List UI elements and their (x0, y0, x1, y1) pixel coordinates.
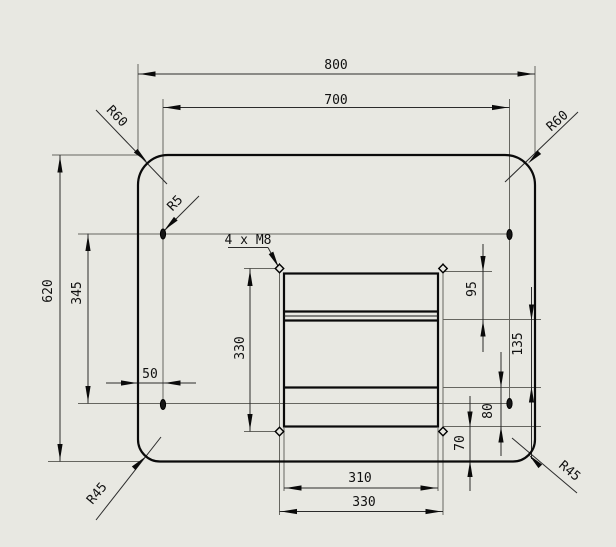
arrow-310-left (286, 485, 302, 490)
arrow-135-bottom (529, 387, 534, 403)
arrow-r60-top-left (134, 149, 149, 164)
leader-r60-top-left (96, 110, 167, 184)
arrow-800-right (518, 71, 534, 76)
arrow-620-top (57, 157, 62, 173)
arrow-330b-left (281, 509, 297, 514)
arrow-800-left (140, 71, 156, 76)
dim-95-label[interactable]: 95 (465, 281, 480, 297)
arrow-70-bottom (467, 461, 472, 477)
m8-marker-bottom-right (439, 427, 447, 435)
arrow-r60-top-right (526, 150, 541, 165)
arrow-310-right (421, 485, 437, 490)
dim-620-label[interactable]: 620 (41, 279, 56, 302)
dim-700-label[interactable]: 700 (324, 93, 347, 108)
arrow-50-right (165, 380, 181, 385)
arrow-700-left (165, 105, 181, 110)
cad-drawing-canvas: 800 700 620 345 330 50 95 135 80 70 310 … (0, 0, 616, 547)
arrow-330b-right (426, 509, 442, 514)
arrow-80-top (498, 372, 503, 388)
arrow-620-bottom (57, 444, 62, 460)
arrow-r45-bottom-left (132, 455, 147, 470)
m8-hole-markers (275, 264, 447, 435)
hole-top-right (507, 230, 512, 240)
arrow-135-top (529, 305, 534, 321)
radius-r60-top-left-label[interactable]: R60 (103, 103, 130, 130)
arrow-70-top (467, 412, 472, 428)
arrow-95-top (480, 256, 485, 272)
hole-bottom-left (160, 400, 165, 410)
dim-800-label[interactable]: 800 (324, 58, 347, 73)
leader-lines (96, 110, 578, 520)
arrow-50-left (121, 380, 137, 385)
dim-330-vertical-label[interactable]: 330 (233, 336, 248, 359)
cad-drawing-svg: 800 700 620 345 330 50 95 135 80 70 310 … (0, 0, 616, 547)
hole-bottom-right (507, 399, 512, 409)
dim-50-label[interactable]: 50 (142, 367, 158, 382)
arrow-345-top (85, 235, 90, 251)
arrow-95-bottom (480, 321, 485, 337)
radius-r45-bottom-right-label[interactable]: R45 (555, 458, 583, 485)
arrow-330v-top (247, 270, 252, 286)
dim-330-bottom-label[interactable]: 330 (352, 495, 375, 510)
outer-plate-outline (138, 155, 535, 462)
m8-marker-top-left (275, 264, 283, 272)
radius-r5-label[interactable]: R5 (165, 193, 187, 215)
arrow-345-bottom (85, 386, 90, 402)
arrow-330v-bottom (247, 414, 252, 430)
hole-callout-label[interactable]: 4 x M8 (225, 233, 272, 248)
arrow-80-bottom (498, 427, 503, 443)
hole-top-left (160, 229, 165, 239)
dim-135-label[interactable]: 135 (511, 332, 526, 355)
m8-marker-bottom-left (275, 427, 283, 435)
dim-70-label[interactable]: 70 (453, 435, 468, 451)
dim-345-label[interactable]: 345 (70, 281, 85, 304)
part-geometry (138, 155, 535, 462)
dim-310-label[interactable]: 310 (348, 471, 371, 486)
arrow-700-right (492, 105, 508, 110)
radius-r60-top-right-label[interactable]: R60 (544, 108, 572, 135)
dim-80-label[interactable]: 80 (481, 403, 496, 419)
leader-r45-bottom-left (96, 437, 161, 520)
radius-r45-bottom-left-label[interactable]: R45 (84, 480, 111, 508)
